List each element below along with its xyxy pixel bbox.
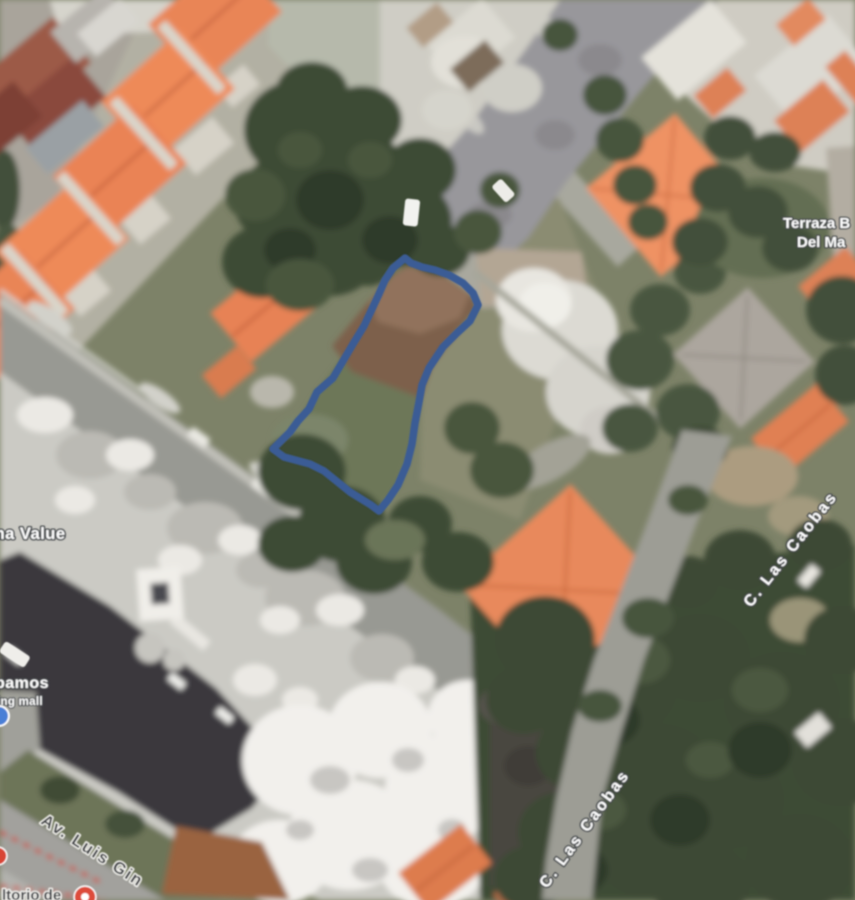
svg-text:ing mall: ing mall: [0, 696, 43, 708]
svg-text:Del Ma: Del Ma: [797, 234, 846, 251]
svg-text:Terraza B: Terraza B: [783, 215, 850, 232]
svg-text:pamos: pamos: [0, 675, 49, 692]
svg-text:ma Value: ma Value: [0, 525, 66, 543]
svg-text:ltorio de: ltorio de: [2, 887, 61, 900]
